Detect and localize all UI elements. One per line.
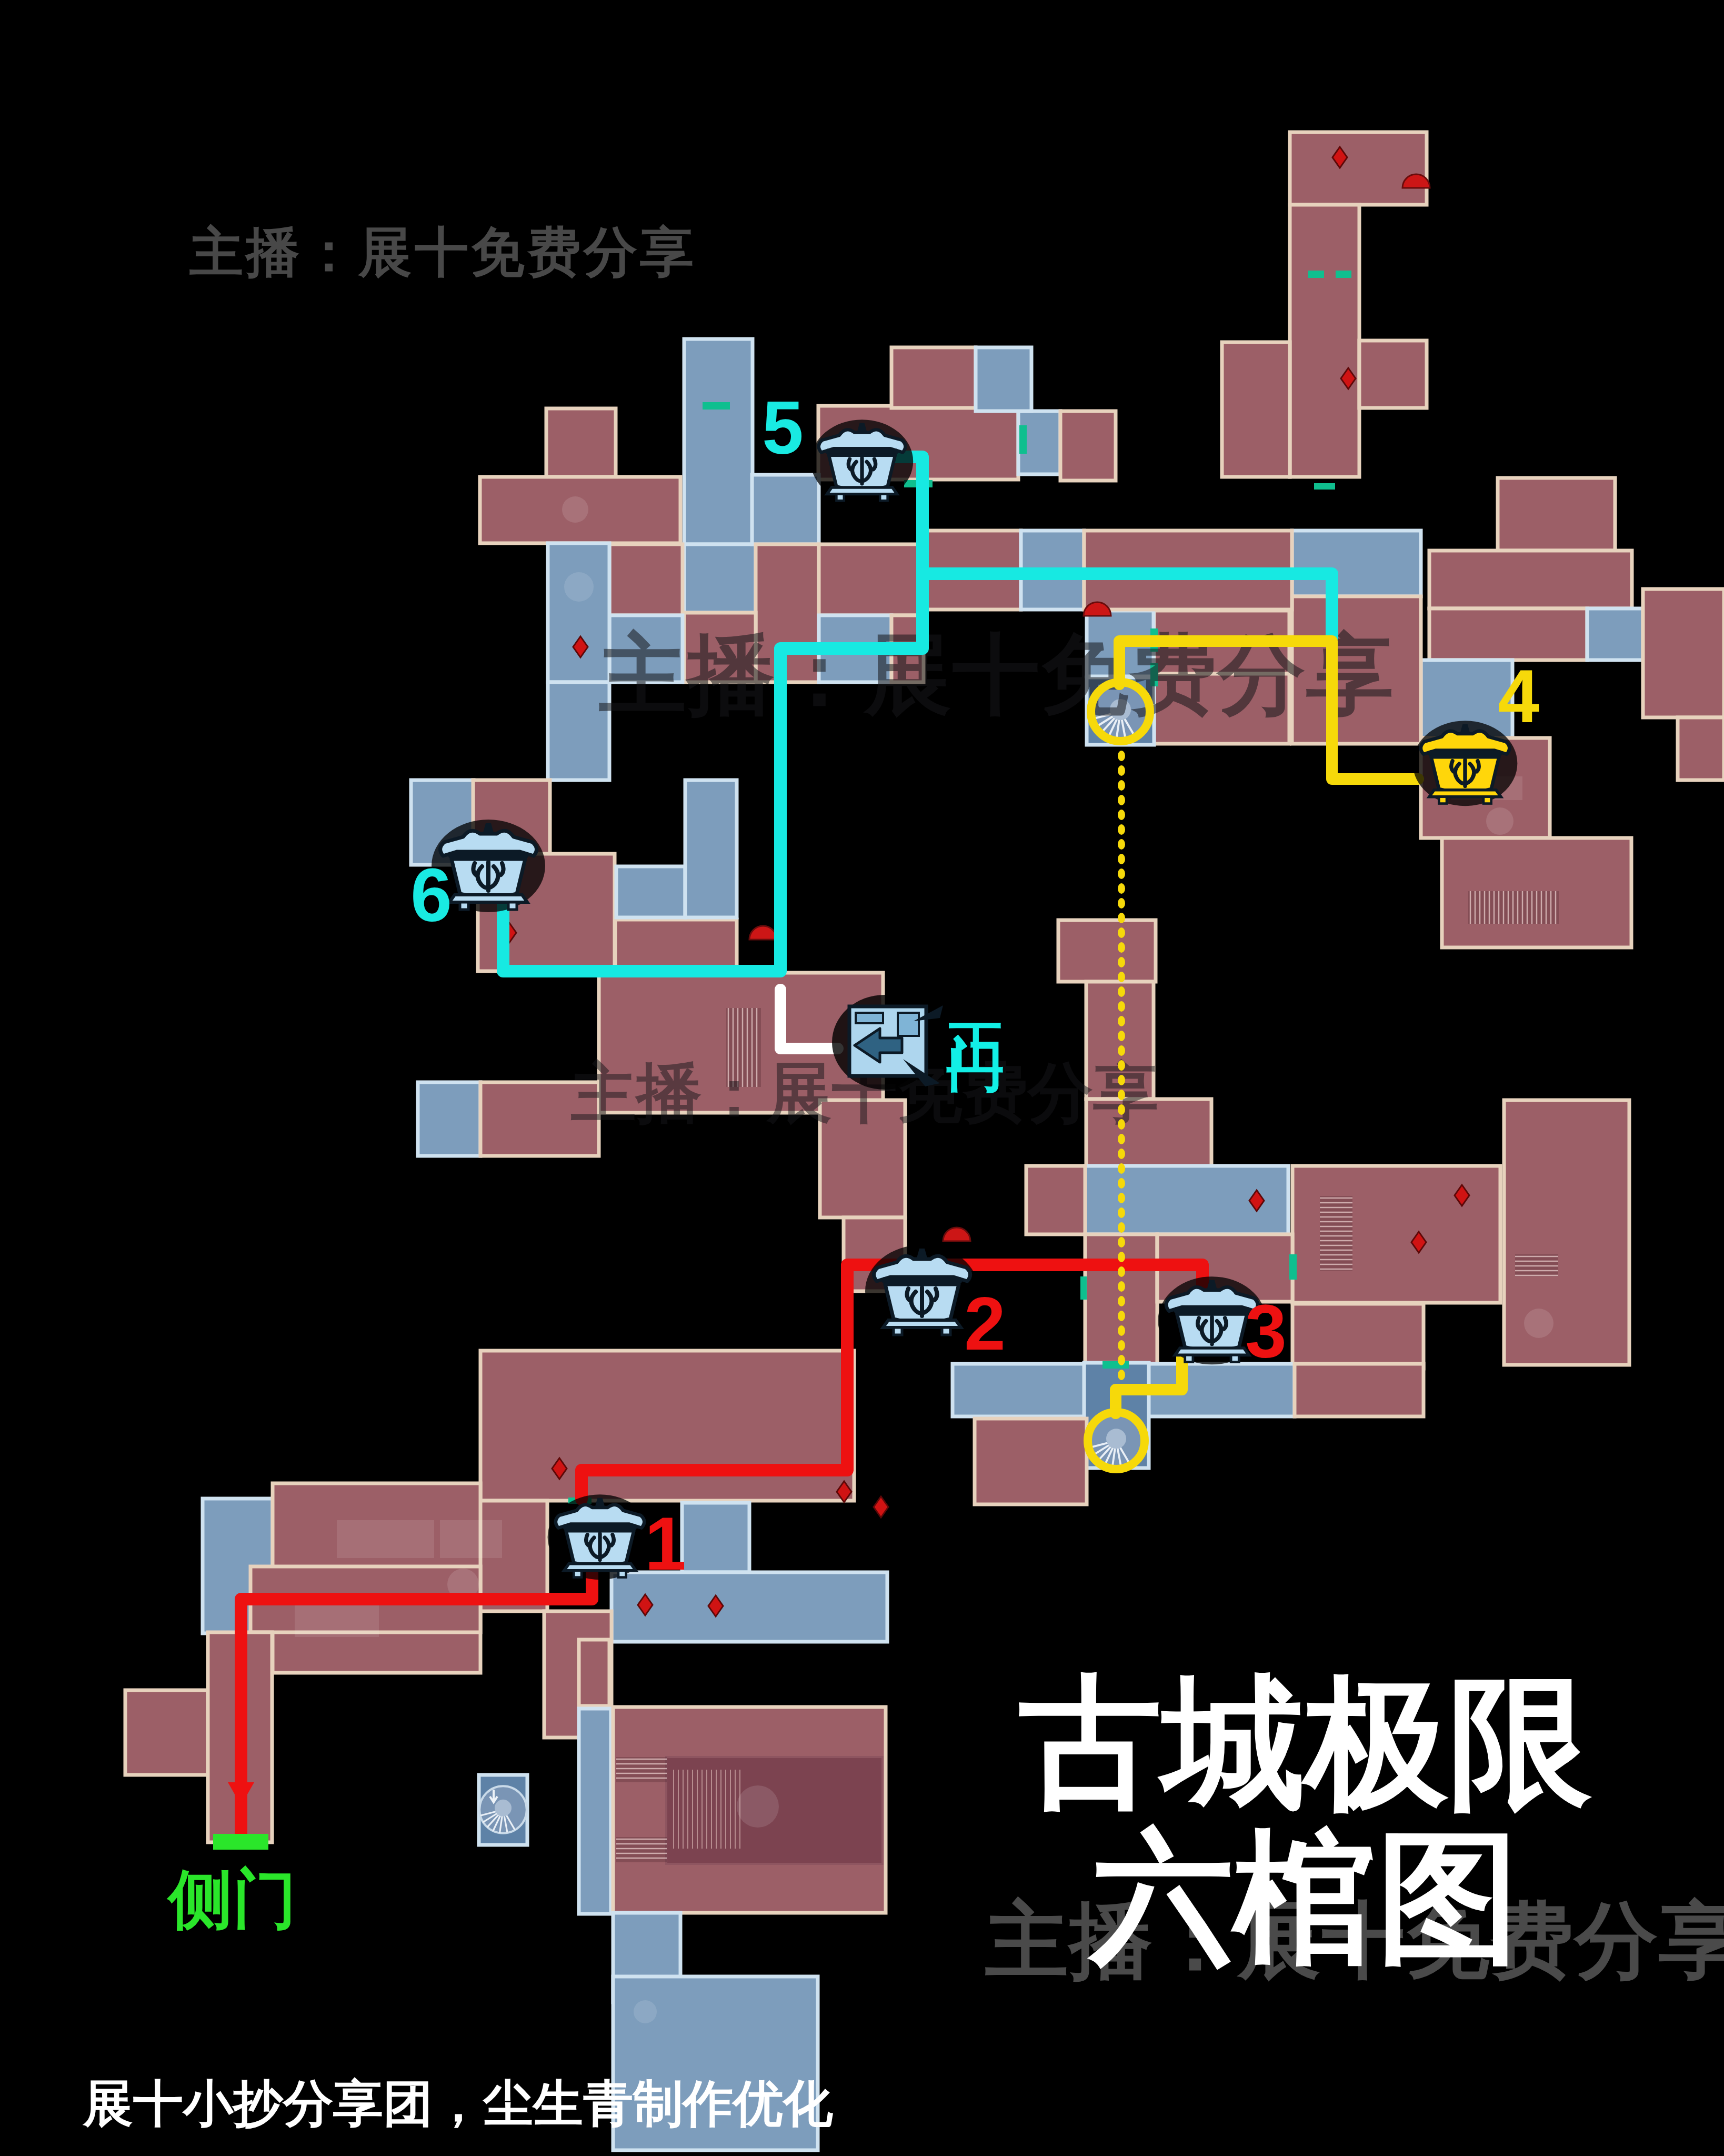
map-title-line1: 古城极限 xyxy=(1000,1666,1610,1821)
coffin-number-1: 1 xyxy=(645,1506,686,1581)
map-title-line2: 六棺图 xyxy=(1000,1821,1610,1975)
map-guide-screenshot: 主播：展十免费分享 主播：展十免费分享 主播：展十免费分享 xyxy=(0,0,1724,2156)
main-gate-icon xyxy=(832,995,943,1090)
coffin-number-5: 5 xyxy=(762,391,804,465)
coffin-number-2: 2 xyxy=(964,1286,1006,1361)
coffin-number-4: 4 xyxy=(1498,659,1539,734)
coffin-number-3: 3 xyxy=(1245,1294,1287,1369)
main-gate-label: 正门 xyxy=(945,978,1008,993)
coffin-2-icon xyxy=(865,1245,979,1337)
coffin-5-icon xyxy=(811,420,913,503)
coffin-1-icon xyxy=(548,1494,653,1580)
side-door-label: 侧门 xyxy=(168,1857,297,1943)
coffin-number-6: 6 xyxy=(410,858,452,933)
map-title: 古城极限 六棺图 xyxy=(1000,1666,1610,1975)
credit-footer: 展十小抄分享团，尘生青制作优化 xyxy=(83,2071,833,2138)
